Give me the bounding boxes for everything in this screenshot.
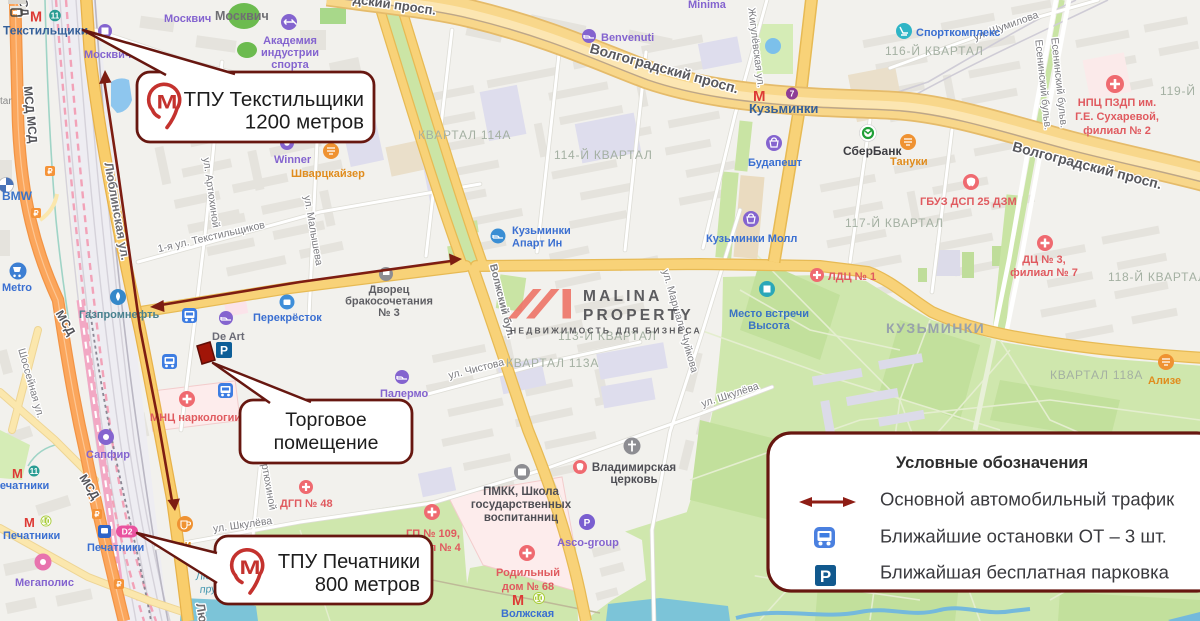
svg-text:₽: ₽ [47,167,52,176]
svg-text:Кузьминки Молл: Кузьминки Молл [706,233,797,245]
svg-text:Место встречи: Место встречи [729,308,809,320]
svg-text:Кузьминки: Кузьминки [512,225,571,237]
svg-text:₽: ₽ [33,209,38,218]
svg-text:Тануки: Тануки [890,156,928,168]
svg-text:Мегаполис: Мегаполис [15,577,74,589]
svg-text:116-Й КВАРТАЛ: 116-Й КВАРТАЛ [885,43,984,58]
svg-text:Палермо: Палермо [380,388,429,400]
svg-text:114-Й КВАРТАЛ: 114-Й КВАРТАЛ [554,147,653,162]
svg-text:Asco-group: Asco-group [557,537,619,549]
svg-text:800 метров: 800 метров [315,574,420,596]
svg-text:ПМКК, Школа: ПМКК, Школа [483,486,559,498]
svg-text:Родильный: Родильный [496,567,560,579]
svg-text:НЕДВИЖИМОСТЬ ДЛЯ БИЗНЕСА: НЕДВИЖИМОСТЬ ДЛЯ БИЗНЕСА [510,326,702,336]
svg-text:Владимирская: Владимирская [592,462,676,474]
svg-text:PROPERTY: PROPERTY [583,307,694,324]
svg-text:ТПУ Текстильщики: ТПУ Текстильщики [184,88,364,111]
svg-text:ДЦ № 3,: ДЦ № 3, [1022,254,1065,266]
svg-text:ДГП № 48: ДГП № 48 [280,498,333,510]
svg-text:Кузьминки: Кузьминки [749,101,818,116]
svg-text:воспитанниц: воспитанниц [484,512,558,524]
svg-text:Ализе: Ализе [1148,375,1181,387]
svg-text:филиал № 7: филиал № 7 [1010,267,1078,279]
svg-text:Москвич: Москвич [215,9,269,23]
svg-text:церковь: церковь [610,474,657,486]
svg-text:НПЦ ПЗДП им.: НПЦ ПЗДП им. [1078,97,1157,109]
svg-text:Г.Е. Сухаревой,: Г.Е. Сухаревой, [1075,111,1159,123]
svg-text:Сапфир: Сапфир [86,449,130,461]
svg-text:Шварцкайзер: Шварцкайзер [291,168,365,180]
svg-text:De Art: De Art [212,331,245,343]
svg-text:Ближайшие остановки ОТ – 3 шт.: Ближайшие остановки ОТ – 3 шт. [880,526,1167,547]
svg-text:P: P [820,567,831,586]
svg-text:М: М [512,593,524,609]
svg-text:Печатники: Печатники [87,542,144,554]
svg-text:филиал № 2: филиал № 2 [1083,125,1151,137]
svg-text:117-Й КВАРТАЛ: 117-Й КВАРТАЛ [845,215,944,230]
svg-text:ГБУЗ ДСП 25 ДЗМ: ГБУЗ ДСП 25 ДЗМ [920,196,1017,208]
svg-text:М: М [12,466,23,481]
svg-text:11: 11 [30,467,39,476]
svg-text:Будапешт: Будапешт [748,157,803,169]
svg-text:Winner: Winner [274,154,312,166]
svg-text:Условные обозначения: Условные обозначения [896,454,1088,472]
svg-text:МСД: МСД [21,86,37,115]
svg-text:Ближайшая бесплатная парковка: Ближайшая бесплатная парковка [880,562,1170,583]
svg-text:Апарт Ин: Апарт Ин [512,238,562,250]
svg-text:Академия: Академия [263,35,317,47]
svg-text:Газпромнефть: Газпромнефть [79,309,160,321]
svg-text:бракосочетания: бракосочетания [345,296,433,308]
svg-text:помещение: помещение [274,432,379,454]
svg-text:Benvenuti: Benvenuti [601,32,654,44]
svg-text:tar: tar [0,96,12,107]
svg-text:₽: ₽ [116,580,121,589]
svg-text:КВАРТАЛ 113А: КВАРТАЛ 113А [506,356,599,370]
svg-text:1200 метров: 1200 метров [245,111,364,134]
svg-text:Дворец: Дворец [369,284,410,296]
svg-text:10: 10 [42,517,51,526]
svg-text:Москвич: Москвич [164,13,211,25]
svg-text:М: М [157,93,178,114]
svg-text:Основной автомобильный трафик: Основной автомобильный трафик [880,489,1175,510]
svg-text:Высота: Высота [748,320,790,332]
svg-text:Metro: Metro [2,282,32,294]
svg-text:МНЦ наркологии: МНЦ наркологии [150,412,241,424]
svg-text:P: P [220,344,228,358]
svg-text:ЛДЦ № 1: ЛДЦ № 1 [828,271,876,283]
svg-text:Печатники: Печатники [3,530,60,542]
svg-text:Текстильщики: Текстильщики [3,24,88,38]
svg-text:MALINA: MALINA [583,288,662,305]
svg-text:119-Й КВ: 119-Й КВ [1160,83,1200,98]
svg-text:7: 7 [790,89,795,99]
svg-text:Торговое: Торговое [285,409,366,431]
svg-text:₽: ₽ [94,510,99,519]
svg-text:КВАРТАЛ 118А: КВАРТАЛ 118А [1050,368,1143,382]
svg-text:10: 10 [535,594,544,603]
svg-text:Спорткомплекс: Спорткомплекс [916,27,1000,39]
svg-text:М: М [24,515,35,530]
svg-text:D2: D2 [122,527,133,537]
svg-text:Перекрёсток: Перекрёсток [253,312,322,324]
svg-text:индустрии: индустрии [261,47,319,59]
svg-text:11: 11 [51,11,60,20]
svg-text:дом № 68: дом № 68 [502,581,554,593]
svg-text:МСД: МСД [24,116,40,145]
svg-text:Minima: Minima [688,0,727,11]
svg-text:ТПУ Печатники: ТПУ Печатники [278,551,420,573]
svg-text:Волжская: Волжская [501,608,554,620]
svg-text:№ 3: № 3 [378,307,399,319]
svg-text:Печатники: Печатники [0,480,49,492]
svg-text:118-Й КВАРТАЛ: 118-Й КВАРТАЛ [1108,269,1200,284]
svg-text:BMW: BMW [2,189,33,203]
svg-text:КУЗЬМИНКИ: КУЗЬМИНКИ [886,320,985,336]
svg-text:М: М [240,558,261,579]
svg-text:КВАРТАЛ 114А: КВАРТАЛ 114А [418,128,511,142]
svg-text:государственных: государственных [471,499,572,511]
svg-text:P: P [584,518,591,529]
svg-text:спорта: спорта [271,59,309,71]
